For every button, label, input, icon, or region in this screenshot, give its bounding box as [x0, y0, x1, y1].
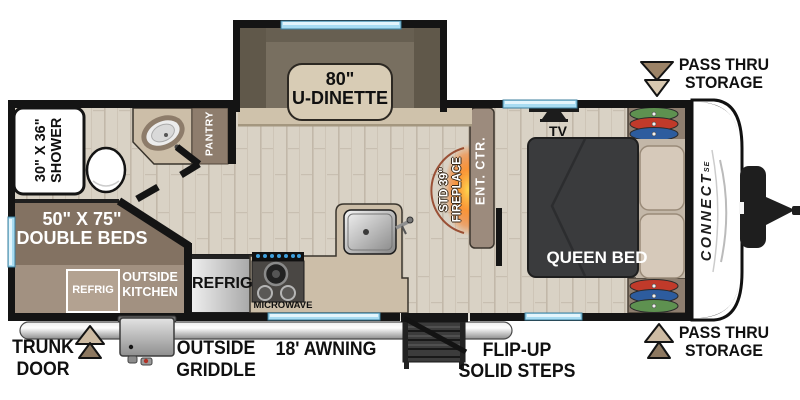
- brand-series: SE: [704, 161, 711, 172]
- flip-up-steps-label: FLIP-UP SOLID STEPS: [455, 340, 580, 383]
- awning-label: 18' AWNING: [270, 340, 382, 361]
- cooktop-stove: [252, 252, 304, 302]
- tv-label: TV: [540, 124, 576, 139]
- window-bedroom-bottom: [525, 313, 582, 320]
- window-dinette: [281, 21, 401, 29]
- refrigerator-label: REFRIG: [192, 275, 252, 292]
- window-bedroom-top: [503, 100, 577, 108]
- shower-label: 30" X 36" SHOWER: [33, 104, 65, 196]
- outside-refrig-label: REFRIG: [72, 285, 114, 297]
- fireplace-label: STD 39" FIREPLACE: [438, 135, 463, 245]
- floorplan-canvas: PASS THRU STORAGE PASS THRU STORAGE TRUN…: [0, 0, 800, 400]
- wardrobe-bottom: [628, 278, 686, 313]
- brand-name: CONNECT: [699, 172, 715, 261]
- pass-thru-storage-bottom-label: PASS THRU STORAGE: [672, 324, 776, 361]
- outside-refrig-box: REFRIG: [66, 269, 120, 313]
- double-beds-label: 50" X 75" DOUBLE BEDS: [6, 210, 158, 249]
- trunk-door-label: TRUNK DOOR: [9, 337, 78, 382]
- outside-griddle-unit: [118, 316, 176, 365]
- pass-thru-arrows-up-icon: [645, 324, 673, 358]
- dinette-label: 80" U-DINETTE: [288, 70, 392, 109]
- brand-logo: CONNECTSE: [699, 136, 717, 286]
- toilet: [87, 148, 125, 192]
- outside-griddle-label: OUTSIDE GRIDDLE: [173, 338, 259, 383]
- pass-thru-storage-top-label: PASS THRU STORAGE: [672, 56, 776, 93]
- microwave-label: MICROWAVE: [246, 301, 320, 311]
- pantry-label: PANTRY: [204, 105, 215, 163]
- ent-ctr-label: ENT. CTR.: [474, 116, 488, 226]
- window-kitchen: [268, 313, 380, 320]
- hitch-tongue: [739, 166, 800, 248]
- queen-bed-label: QUEEN BED: [541, 249, 653, 267]
- pass-thru-arrows-down-icon: [641, 62, 673, 96]
- wardrobe-top: [628, 106, 686, 141]
- outside-kitchen-label: OUTSIDE KITCHEN: [114, 270, 186, 301]
